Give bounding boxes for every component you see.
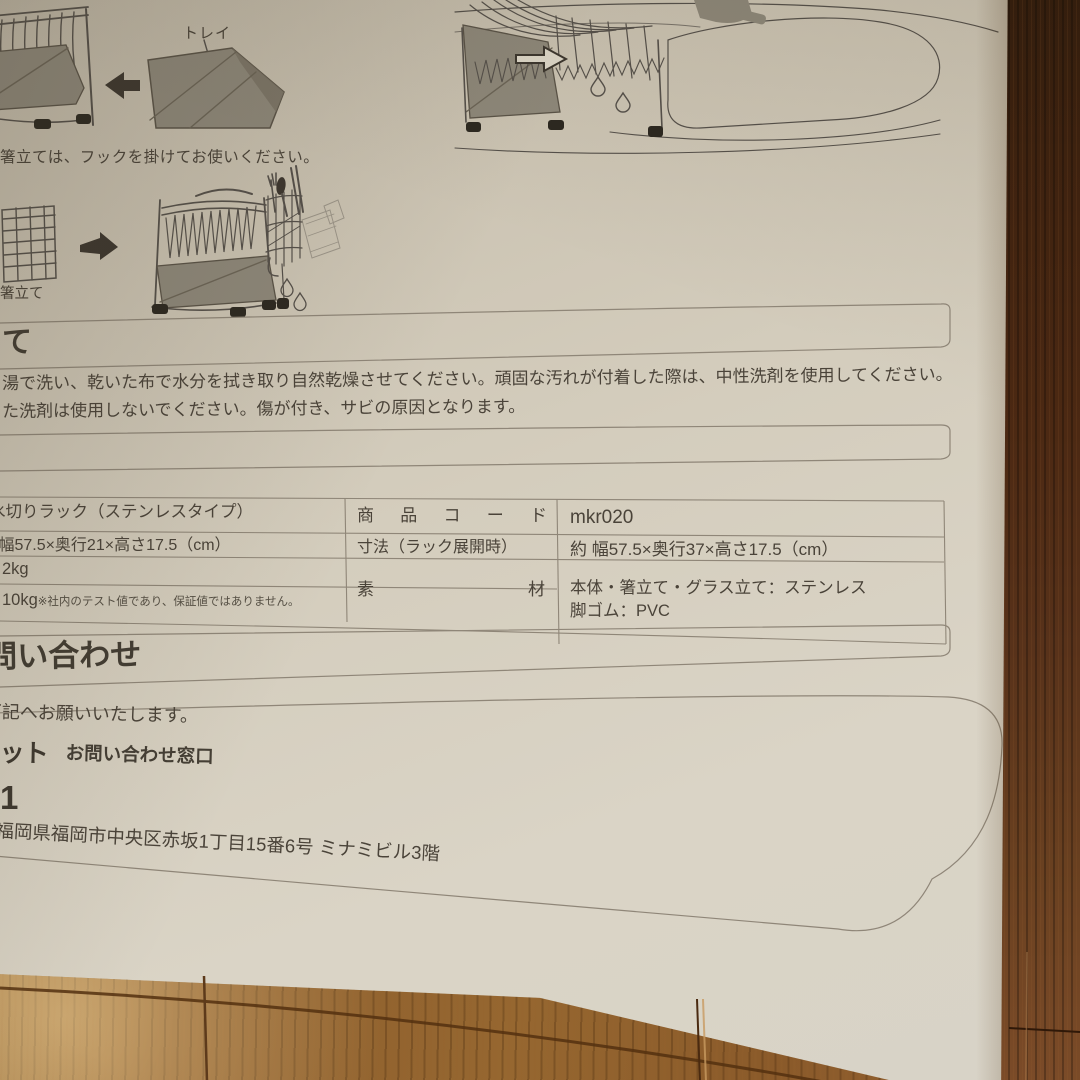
phone-number-fragment: 1 (0, 778, 18, 818)
material-label: 素材 (357, 580, 545, 600)
arrow-right-icon (80, 232, 118, 260)
product-code-label: 商品コード (357, 506, 547, 526)
tray-illustration (148, 40, 284, 128)
load-value: 10kg (2, 591, 38, 609)
care-instruction-line2: た洗剤は使用しないでください。傷が付き、サビの原因となります。 (2, 397, 525, 422)
size-folded-cell: 約 幅57.5×奥行21×高さ17.5（cm） (0, 536, 340, 560)
tray-label: トレイ (183, 25, 231, 43)
photo-of-instruction-sheet-on-wood: トレイ 箸立ては、フックを掛けてお使いください。 箸立て て 湯で洗い、乾いた布… (0, 0, 1080, 1080)
contact-intro: 下記へお願いいたします。 (0, 702, 320, 730)
hashitate-label: 箸立て (0, 286, 44, 303)
small-basket-illustration (2, 206, 56, 282)
rack-with-cutlery-stand-illustration (152, 166, 344, 317)
material-line2: 脚ゴム：PVC (570, 600, 867, 623)
brand-logo-fragment: ット (0, 738, 48, 769)
instruction-sheet: トレイ 箸立ては、フックを掛けてお使いください。 箸立て て 湯で洗い、乾いた布… (0, 0, 1080, 1080)
size-label: 寸法（ラック展開時） (357, 538, 517, 557)
water-drop-icon (281, 279, 306, 311)
product-code-value: mkr020 (570, 507, 633, 530)
rack-illustration (0, 7, 93, 129)
care-instruction-line1: 湯で洗い、乾いた布で水分を拭き取り自然乾燥させてください。頑固な汚れが付着した際… (2, 365, 953, 395)
rack-over-sink-illustration (455, 0, 998, 153)
arrow-right-outline-icon (516, 47, 566, 71)
contact-box-outline (0, 696, 1002, 931)
load-note: ※社内のテスト値であり、保証値ではありません。 (38, 596, 300, 608)
cutlery-icon (268, 166, 303, 216)
contact-heading-wrap: お問い合わせ (0, 634, 281, 684)
spec-section-band (0, 425, 950, 471)
material-line1: 本体・箸立て・グラス立て：ステンレス (570, 577, 867, 600)
care-heading-fragment: て (2, 325, 32, 361)
water-drop-icon (591, 77, 630, 112)
weight-value: 2kg (2, 560, 29, 580)
contact-intro-wrap: 下記へお願いいたします。 (0, 702, 320, 734)
product-name-cell: 水切りラック（ステンレスタイプ） (0, 503, 340, 529)
hook-usage-caption: 箸立ては、フックを掛けてお使いください。 (0, 149, 319, 168)
size-expanded-value: 約 幅57.5×奥行37×高さ17.5（cm） (570, 540, 838, 560)
address-wrap: 福岡県福岡市中央区赤坂1丁目15番6号 ミナミビル3階 (0, 820, 539, 878)
glass-illustration (302, 200, 344, 258)
arrow-left-icon (105, 72, 140, 99)
contact-window-label: お問い合わせ窓口 (65, 742, 214, 768)
care-section-band (0, 304, 950, 369)
material-value: 本体・箸立て・グラス立て：ステンレス 脚ゴム：PVC (570, 577, 867, 623)
address: 福岡県福岡市中央区赤坂1丁目15番6号 ミナミビル3階 (0, 820, 539, 870)
load-cell: 10kg※社内のテスト値であり、保証値ではありません。 (2, 591, 300, 611)
faucet-icon (694, 0, 767, 25)
contact-heading: お問い合わせ (0, 634, 280, 676)
